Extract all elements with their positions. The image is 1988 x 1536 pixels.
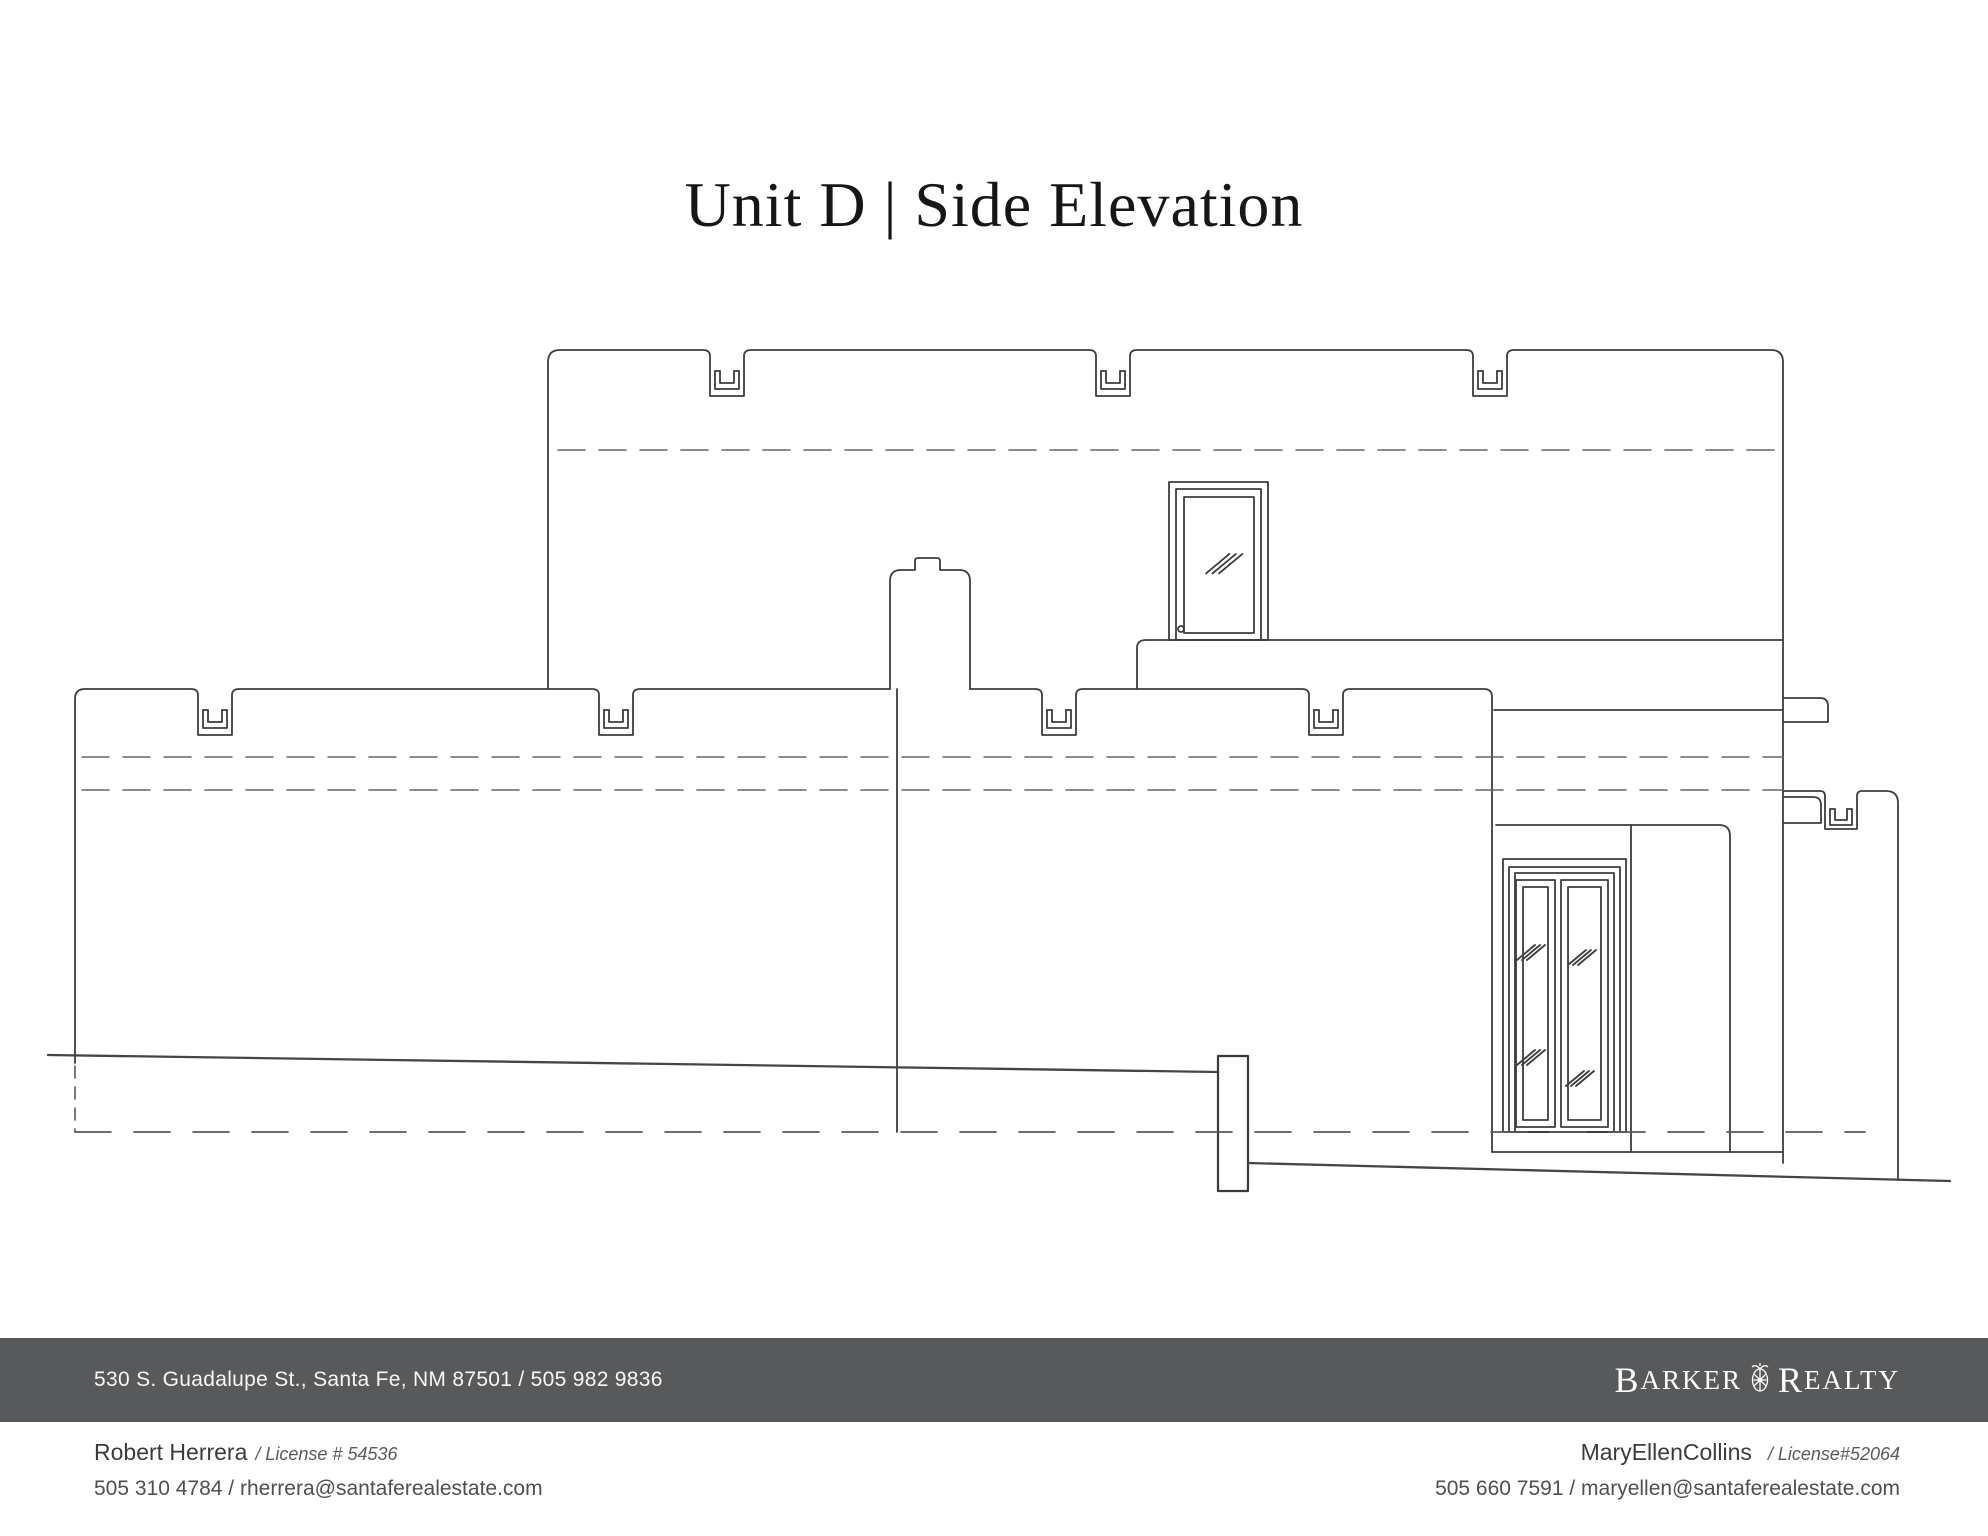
lower-canale-scupper — [604, 710, 628, 728]
agent-left-license: / License # 54536 — [255, 1444, 397, 1464]
agent-left: Robert Herrera/ License # 54536 505 310 … — [94, 1436, 543, 1503]
elevation-drawing — [0, 0, 1988, 1536]
brand-word2: EALTY — [1804, 1365, 1900, 1396]
upper-canale-scupper — [1106, 371, 1120, 383]
lower-canale-scupper — [1319, 710, 1333, 722]
right-wing-canale-inner — [1830, 809, 1852, 825]
glass-hatch — [1566, 1071, 1594, 1086]
gate-post — [1218, 1056, 1248, 1191]
agent-right-license: / License#52064 — [1768, 1444, 1900, 1464]
lower-canale-scupper — [1314, 710, 1338, 728]
glass-hatch-marks — [1206, 554, 1596, 1086]
barker-realty-logo: BARKER REALTY — [1614, 1359, 1900, 1401]
agent-left-contact: 505 310 4784 / rherrera@santaferealestat… — [94, 1475, 543, 1503]
glass-hatch — [1206, 554, 1242, 574]
right-wall-cap-lower — [1783, 797, 1821, 823]
agent-right-contact: 505 660 7591 / maryellen@santaferealesta… — [1435, 1475, 1900, 1503]
glass-hatch — [1517, 1050, 1545, 1065]
glass-hatch — [1568, 950, 1596, 965]
upper-canale-scupper — [1101, 371, 1125, 389]
brand-word1-initial: B — [1614, 1359, 1640, 1401]
chimney — [890, 558, 970, 689]
upper-canale-scupper — [1483, 371, 1497, 383]
upper-canale-scupper — [715, 371, 739, 389]
office-address: 530 S. Guadalupe St., Santa Fe, NM 87501… — [94, 1368, 663, 1392]
lower-canale-scupper — [1047, 710, 1071, 728]
lower-parapet-outline-right — [970, 689, 1492, 1152]
brand-word2-initial: R — [1778, 1359, 1804, 1401]
lower-canale-scupper — [1052, 710, 1066, 722]
footer-bar: 530 S. Guadalupe St., Santa Fe, NM 87501… — [0, 1338, 1988, 1422]
upper-canale-scupper — [1478, 371, 1502, 389]
lower-canale-scupper — [203, 710, 227, 728]
right-wing-wall — [1783, 791, 1898, 1180]
upper-door — [1169, 482, 1268, 640]
brand-word1: ARKER — [1640, 1365, 1742, 1396]
lower-canale-scupper — [609, 710, 623, 722]
right-wall-cap-upper — [1783, 698, 1828, 722]
agent-left-name: Robert Herrera — [94, 1439, 247, 1465]
agent-right-name: MaryEllenCollins — [1581, 1439, 1752, 1465]
agent-right: MaryEllenCollins/ License#52064 505 660 … — [1435, 1436, 1900, 1503]
french-doors — [1503, 859, 1626, 1132]
mid-parapet-band — [1137, 640, 1783, 689]
grade-line-left — [48, 1055, 1218, 1072]
portal-recess — [1496, 825, 1730, 1152]
lower-canale-scupper — [208, 710, 222, 722]
glass-hatch — [1517, 945, 1545, 960]
driveway-grade-line — [1248, 1163, 1950, 1181]
upper-canale-scupper — [720, 371, 734, 383]
barker-realty-crest-icon — [1748, 1361, 1772, 1400]
lower-parapet-outline-left — [75, 689, 890, 1063]
